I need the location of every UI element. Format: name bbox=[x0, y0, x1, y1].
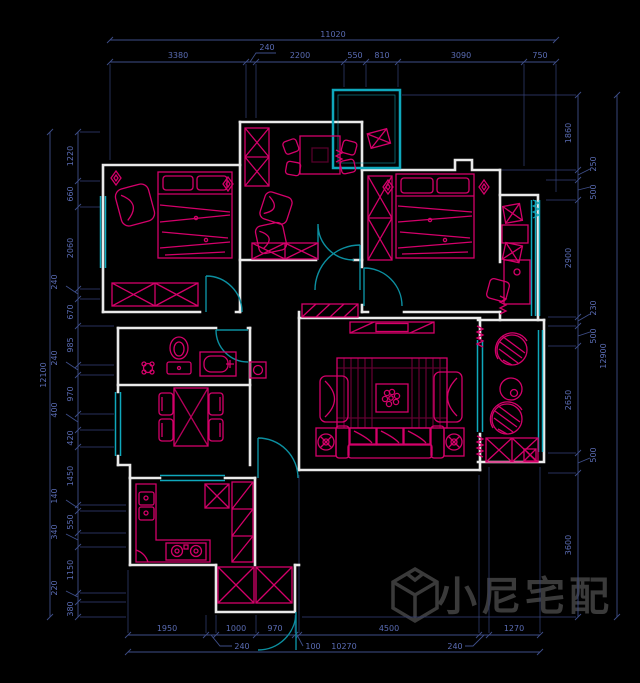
dim-label: 230 bbox=[589, 300, 598, 315]
dim-label: 970 bbox=[66, 386, 75, 401]
dim-label: 240 bbox=[447, 642, 462, 651]
watermark-text: 小尼宅配 bbox=[437, 574, 613, 620]
dim-label: 240 bbox=[259, 43, 274, 52]
dim-label: 400 bbox=[50, 402, 59, 417]
dim-label: 2900 bbox=[564, 248, 573, 268]
dim-label: 670 bbox=[66, 304, 75, 319]
dim-label: 1150 bbox=[66, 560, 75, 580]
dim-label: 1860 bbox=[564, 123, 573, 143]
dim-label: 3600 bbox=[564, 535, 573, 555]
dim-label: 2650 bbox=[564, 390, 573, 410]
dim-label: 420 bbox=[66, 430, 75, 445]
dim-label: 250 bbox=[589, 156, 598, 171]
dim-label: 550 bbox=[347, 51, 362, 60]
dim-label: 3090 bbox=[451, 51, 471, 60]
dim-label: 1220 bbox=[66, 146, 75, 166]
dim-label: 2060 bbox=[66, 238, 75, 258]
dim-label: 240 bbox=[50, 274, 59, 289]
dim-left-overall: 12100 bbox=[39, 362, 48, 387]
dim-label: 240 bbox=[50, 350, 59, 365]
dim-label: 100 bbox=[305, 642, 320, 651]
dim-label: 140 bbox=[50, 488, 59, 503]
dim-bottom-overall: 10270 bbox=[331, 642, 356, 651]
dim-right-overall: 12900 bbox=[599, 343, 608, 368]
dim-label: 500 bbox=[589, 447, 598, 462]
floor-plan-canvas: 小尼宅配 bbox=[0, 0, 640, 683]
dim-label: 660 bbox=[66, 186, 75, 201]
dim-label: 985 bbox=[66, 337, 75, 352]
dim-label: 1000 bbox=[226, 624, 246, 633]
dim-label: 240 bbox=[234, 642, 249, 651]
dim-label: 4500 bbox=[379, 624, 399, 633]
dim-label: 2200 bbox=[290, 51, 310, 60]
dim-label: 1950 bbox=[157, 624, 177, 633]
dim-label: 550 bbox=[66, 514, 75, 529]
dim-label: 500 bbox=[589, 184, 598, 199]
dim-label: 1450 bbox=[66, 466, 75, 486]
dim-label: 970 bbox=[267, 624, 282, 633]
dim-top-overall: 11020 bbox=[320, 30, 345, 39]
dim-label: 1270 bbox=[504, 624, 524, 633]
dim-label: 500 bbox=[589, 328, 598, 343]
floor-plan-drawing: 小尼宅配 bbox=[0, 0, 640, 683]
dim-label: 220 bbox=[50, 580, 59, 595]
dim-label: 340 bbox=[50, 524, 59, 539]
dim-label: 810 bbox=[374, 51, 389, 60]
dim-label: 750 bbox=[532, 51, 547, 60]
dim-label: 380 bbox=[66, 601, 75, 616]
dim-label: 3380 bbox=[168, 51, 188, 60]
